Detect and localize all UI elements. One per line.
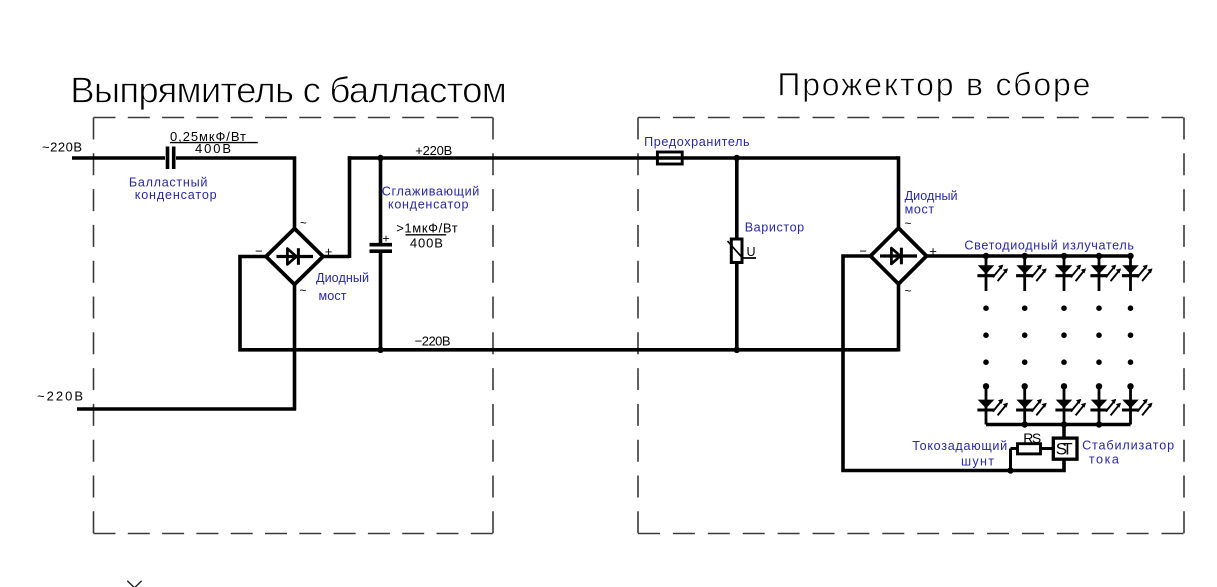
svg-text:400В: 400В <box>410 236 443 251</box>
svg-text:~220В: ~220В <box>37 389 83 404</box>
svg-text:Токозадающий: Токозадающий <box>912 439 1007 453</box>
svg-text:U: U <box>747 245 756 259</box>
svg-text:~: ~ <box>300 285 307 297</box>
svg-text:Выпрямитель с балластом: Выпрямитель с балластом <box>70 69 507 110</box>
svg-text:ST: ST <box>1056 440 1073 459</box>
svg-text:~: ~ <box>300 218 307 230</box>
svg-text:Светодиодный излучатель: Светодиодный излучатель <box>964 238 1134 252</box>
svg-text:мост: мост <box>319 289 347 303</box>
svg-text:~: ~ <box>905 218 912 230</box>
svg-text:Сглаживающий: Сглаживающий <box>382 185 480 199</box>
svg-text:Прожектор в сборе: Прожектор в сборе <box>777 67 1090 103</box>
svg-text:+220В: +220В <box>415 143 452 158</box>
svg-text:>1мкФ/Вт: >1мкФ/Вт <box>396 221 458 236</box>
svg-text:−220В: −220В <box>415 333 451 348</box>
svg-text:+: + <box>383 232 390 246</box>
svg-text:Стабилизатор: Стабилизатор <box>1082 439 1174 453</box>
svg-text:конденсатор: конденсатор <box>388 198 469 212</box>
svg-text:400В: 400В <box>195 141 231 156</box>
svg-text:~: ~ <box>905 286 912 298</box>
svg-text:Варистор: Варистор <box>745 221 805 235</box>
svg-text:Предохранитель: Предохранитель <box>644 135 750 149</box>
svg-text:Диодный: Диодный <box>905 189 958 203</box>
svg-text:~220В: ~220В <box>42 140 82 155</box>
svg-text:конденсатор: конденсатор <box>135 188 217 202</box>
svg-text:шунт: шунт <box>961 455 994 469</box>
svg-text:мост: мост <box>905 203 935 217</box>
svg-text:RS: RS <box>1023 430 1041 446</box>
svg-text:Диодный: Диодный <box>316 271 369 285</box>
svg-text:тока: тока <box>1089 453 1119 467</box>
